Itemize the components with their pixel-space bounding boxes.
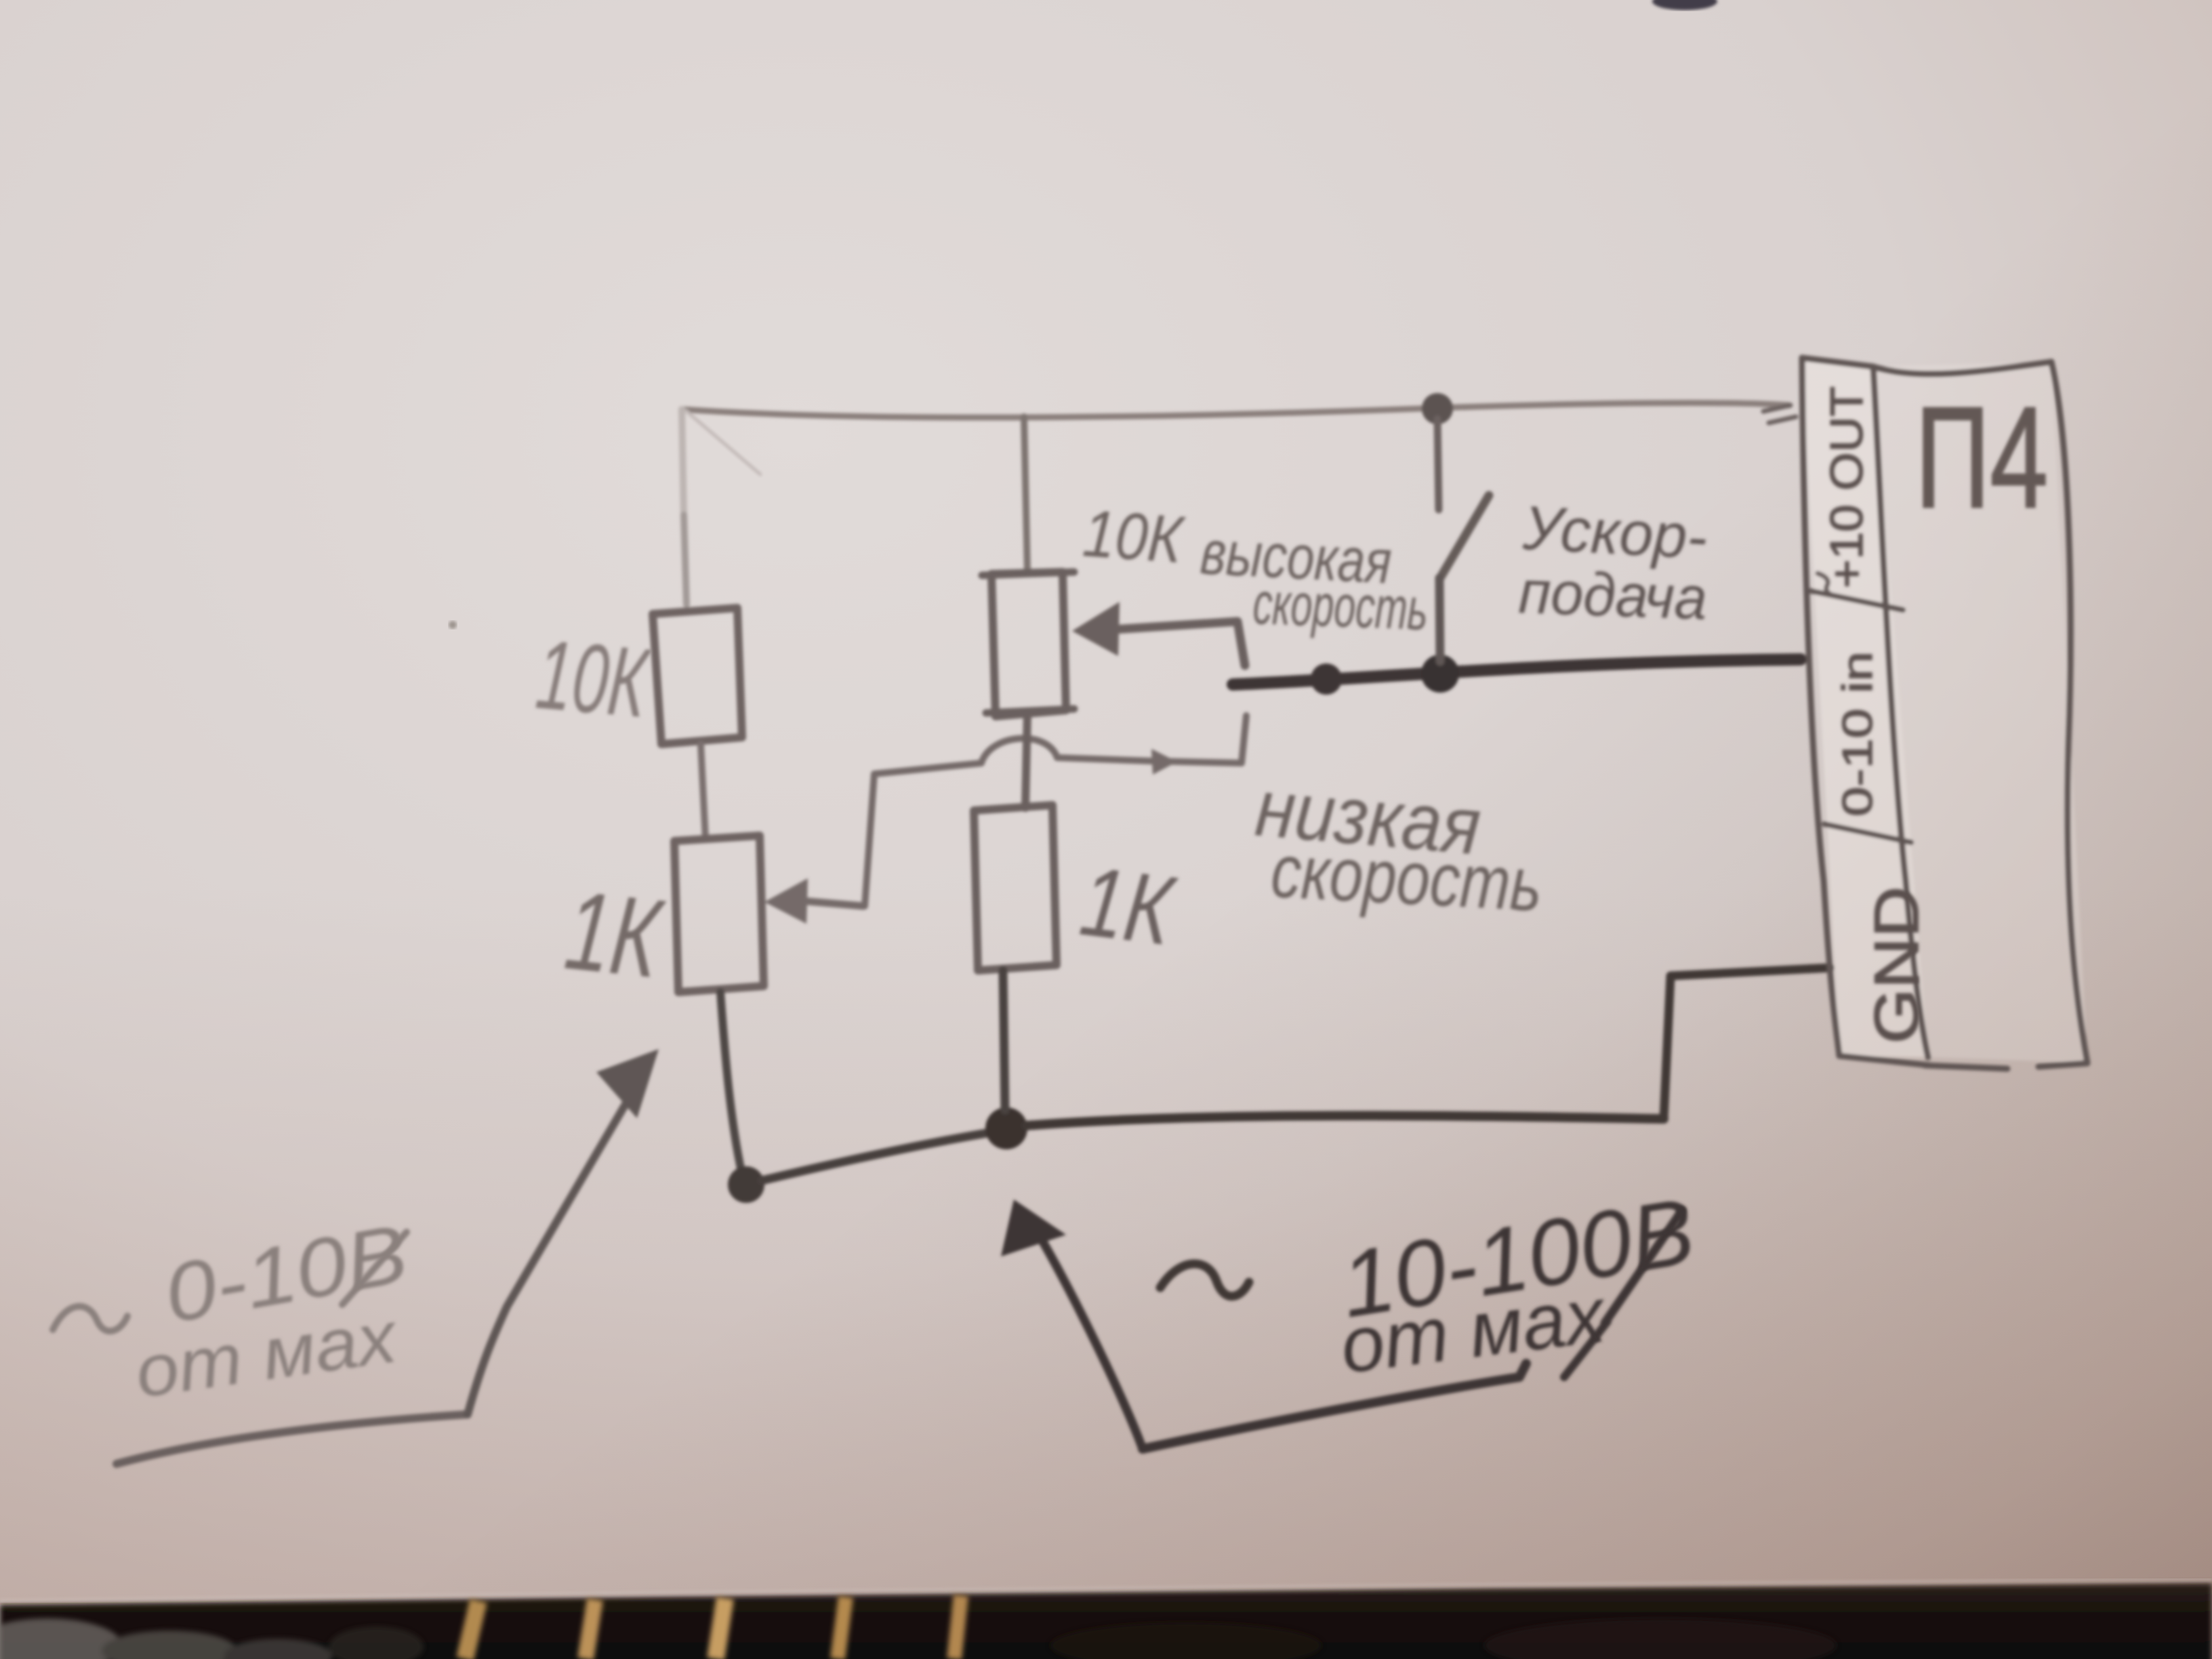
svg-text:П4: П4 <box>1915 377 2048 537</box>
svg-text:GND: GND <box>1862 886 1931 1044</box>
svg-text:подача: подача <box>1517 558 1708 633</box>
svg-text:скорость: скорость <box>1269 828 1544 927</box>
svg-text:1К: 1К <box>1075 846 1182 966</box>
svg-text:10К: 10К <box>532 619 654 738</box>
svg-text:10К: 10К <box>1081 495 1188 577</box>
svg-text:скорость: скорость <box>1252 569 1429 642</box>
svg-text:1К: 1К <box>560 867 669 1002</box>
svg-text:0-10 in: 0-10 in <box>1835 651 1881 817</box>
svg-text:+10 OUТ: +10 OUТ <box>1821 386 1872 588</box>
